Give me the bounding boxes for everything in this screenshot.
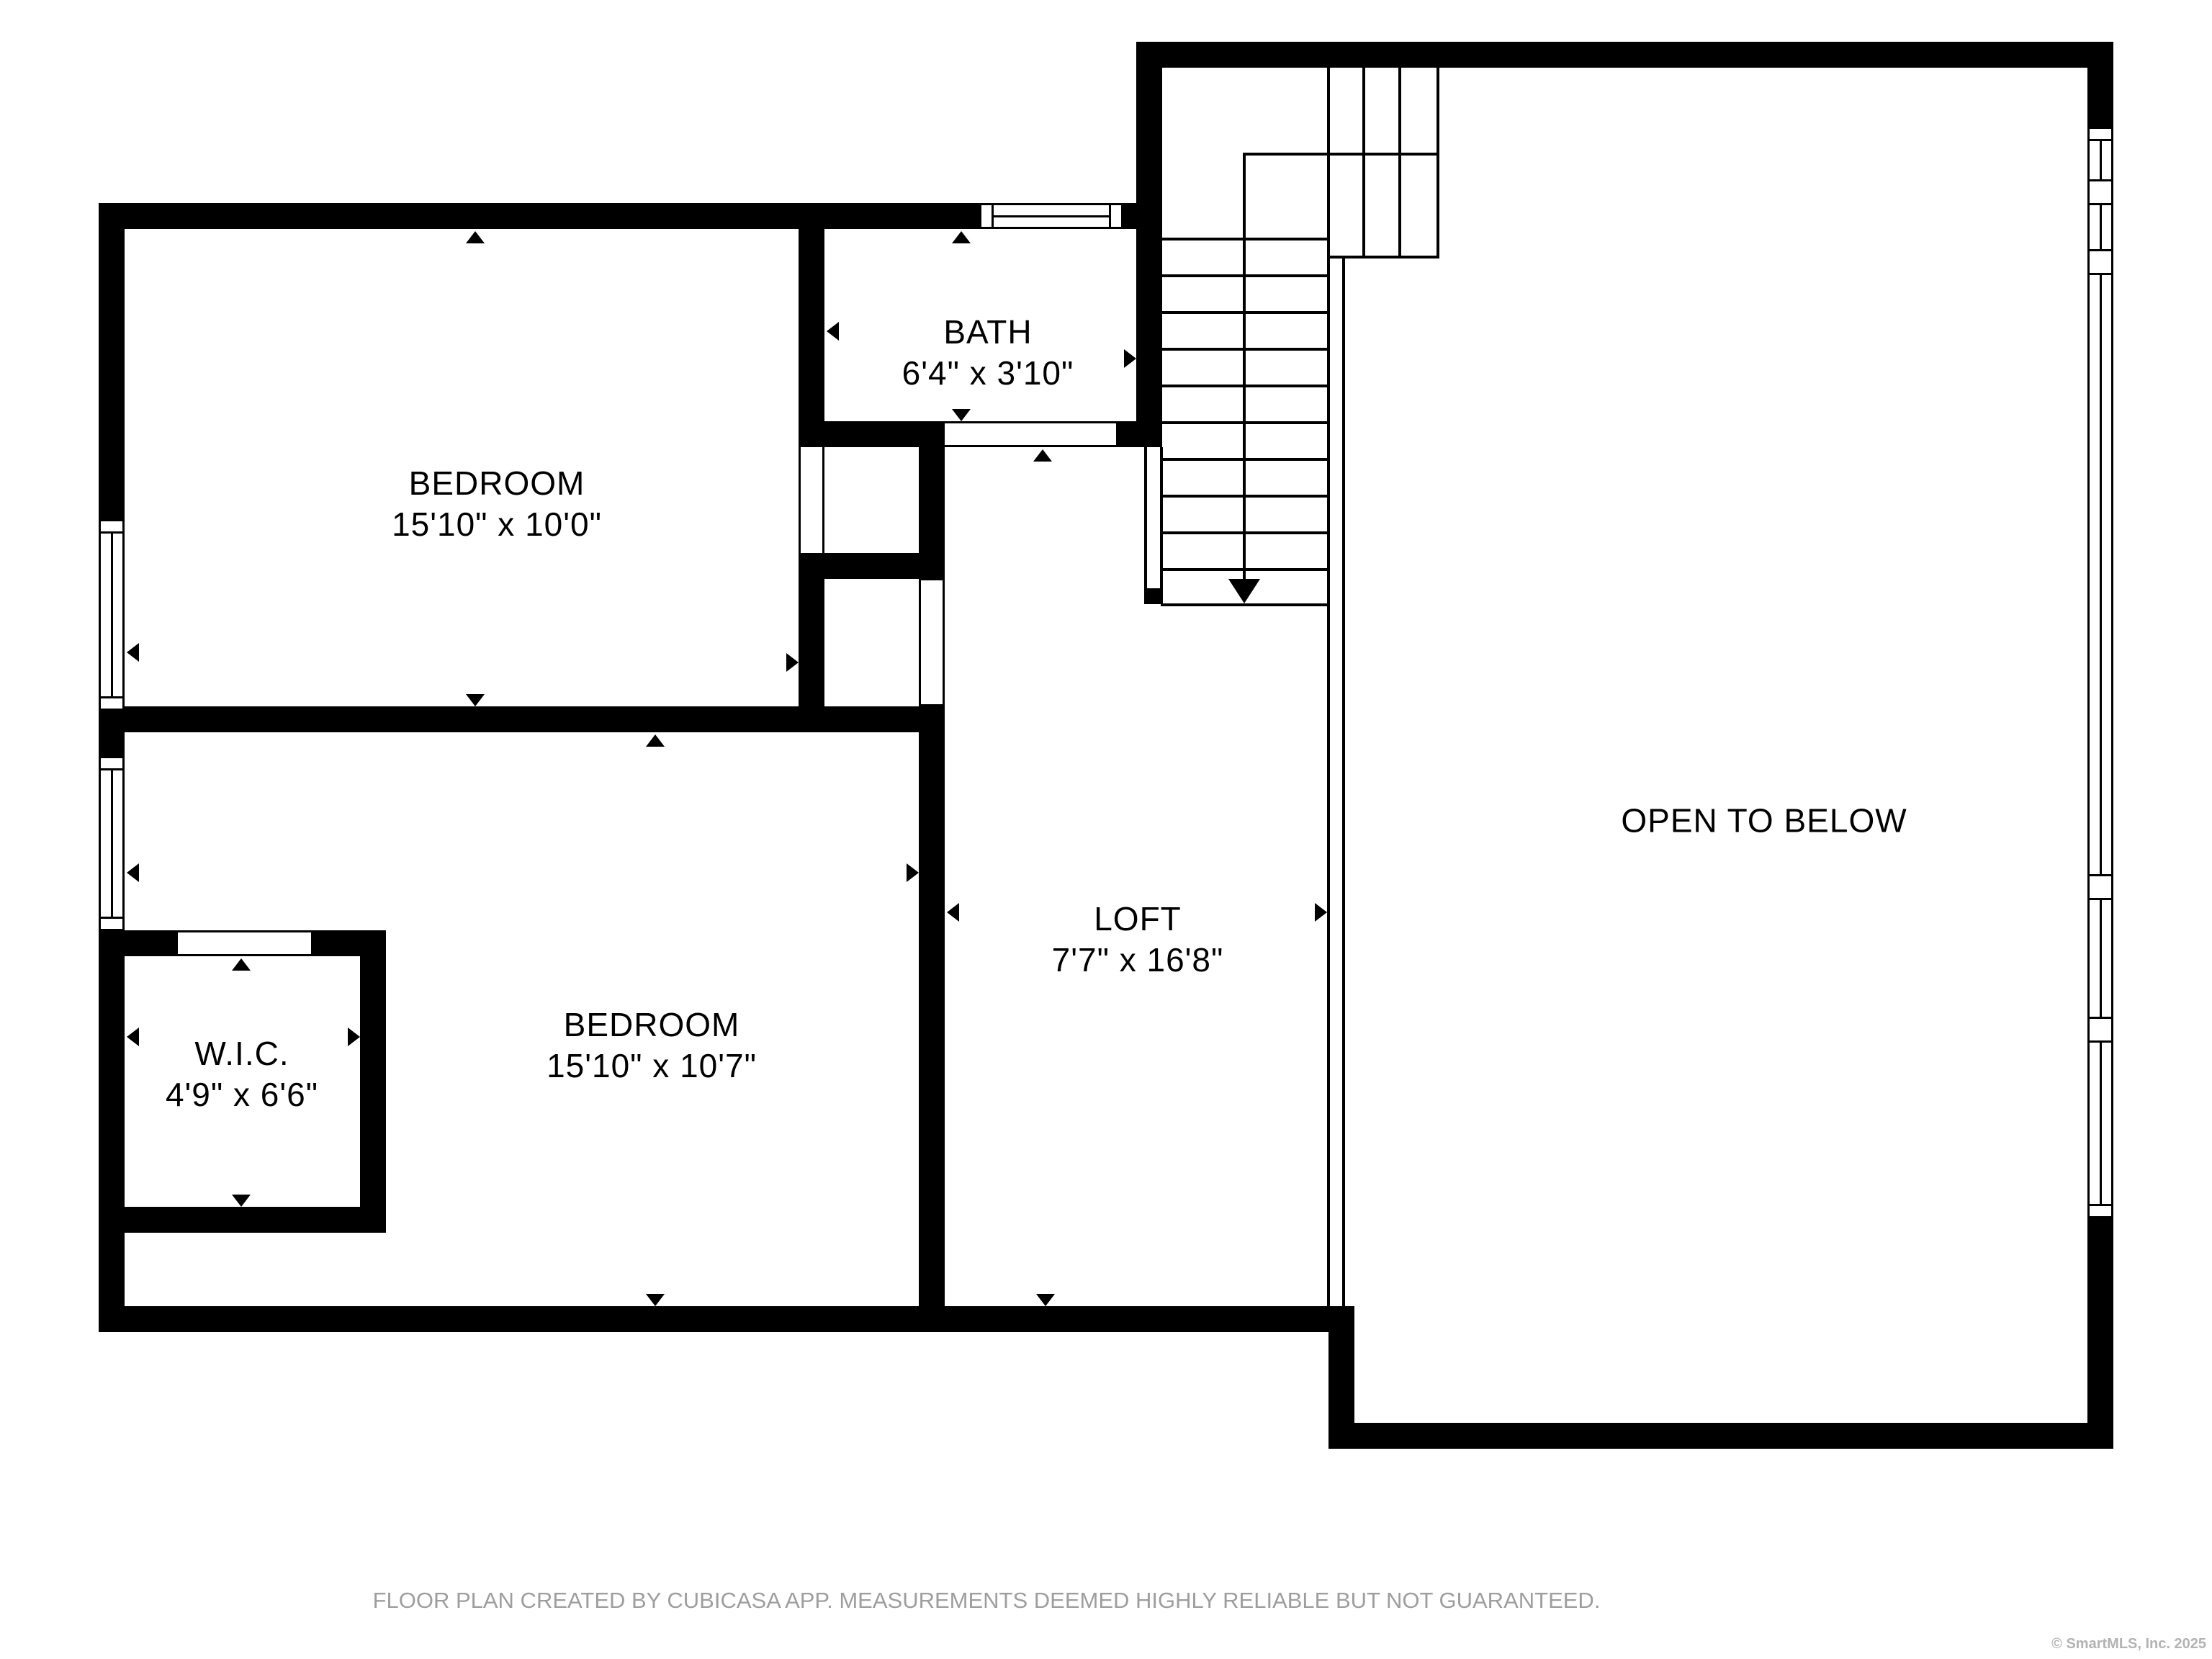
wic-door-jamb-a (178, 930, 311, 932)
room-label-wic: W.I.C.4'9" x 6'6" (166, 1033, 318, 1115)
hall-door-jamb-a (919, 580, 921, 704)
bedroom2-left-arrow-icon (125, 863, 139, 882)
tread-2 (1161, 311, 1328, 314)
bedroom2-bottom-arrow-icon (646, 1294, 665, 1308)
bath-bottom-wall-right (1116, 421, 1162, 447)
window-cap (1109, 205, 1111, 227)
room-dimensions-bedroom-1: 15'10" x 10'0" (392, 504, 602, 545)
room-dimensions-bedroom-2: 15'10" x 10'7" (547, 1046, 757, 1087)
loft-right-arrow-icon (1315, 903, 1329, 922)
bedroom1-left-arrow-icon (125, 643, 139, 662)
stair-center-line (1243, 153, 1246, 585)
window-glass-line (111, 770, 113, 917)
window-glass-line (994, 215, 1109, 217)
bedroom1-door-jamb-a (799, 447, 801, 553)
bedroom1-top-arrow-icon (466, 229, 485, 243)
copyright-notice: © SmartMLS, Inc. 2025 (2051, 1636, 2206, 1653)
window-divider (2090, 249, 2111, 275)
bath-top-arrow-icon (952, 229, 971, 243)
stair-direction-arrow-icon (1228, 579, 1260, 606)
bedroom-divider-wall (99, 706, 945, 732)
room-name-bedroom-2: BEDROOM (547, 1004, 757, 1046)
room-name-open-to-below: OPEN TO BELOW (1621, 801, 1907, 842)
room-label-loft: LOFT7'7" x 16'8" (1052, 899, 1224, 981)
tread-5 (1161, 421, 1328, 424)
stair-right-edge (1437, 68, 1439, 258)
window-cap (101, 917, 122, 919)
bedroom1-right-wall-upper (799, 229, 824, 447)
stair-left-wall (1136, 42, 1162, 447)
room-name-bath: BATH (902, 312, 1074, 353)
room-label-bedroom-1: BEDROOM15'10" x 10'0" (392, 463, 602, 545)
bedroom1-right-arrow-icon (786, 653, 801, 672)
loft-bottom-arrow-icon (1036, 1294, 1055, 1308)
hall-wall-upper (919, 421, 945, 580)
winder-line-2 (1398, 68, 1401, 258)
wic-bottom-arrow-icon (232, 1195, 251, 1209)
window-glass-line (2100, 141, 2102, 1204)
stair-side-railing-b (1160, 447, 1163, 588)
bath-door-arrow-icon (1033, 447, 1052, 462)
stair-winder-edge-railing-left (1327, 68, 1330, 1306)
wic-right-wall (360, 930, 386, 1233)
tread-6 (1161, 458, 1328, 461)
bedroom2-window (99, 756, 125, 931)
bedroom1-bottom-arrow-icon (466, 694, 485, 709)
room-name-wic: W.I.C. (166, 1033, 318, 1074)
bath-door-jamb-b (943, 445, 1116, 447)
window-cap (2090, 1204, 2111, 1206)
room-dimensions-loft: 7'7" x 16'8" (1052, 940, 1224, 981)
bedroom2-right-arrow-icon (907, 863, 921, 882)
bath-right-arrow-icon (1124, 349, 1138, 368)
hall-door-jamb-b (943, 580, 945, 704)
stair-side-railing-a (1144, 447, 1147, 588)
bedroom1-door-jamb-b (822, 447, 824, 553)
window-divider (2090, 874, 2111, 900)
room-dimensions-bath: 6'4" x 3'10" (902, 353, 1074, 394)
wic-door-arrow-icon (232, 956, 251, 971)
open-area-window-bank (2087, 127, 2113, 1218)
loft-railing-right (1342, 256, 1345, 1306)
open-bottom-wall (1328, 1423, 2113, 1449)
loft-left-arrow-icon (945, 903, 959, 922)
wic-left-arrow-icon (125, 1028, 139, 1046)
tread-3 (1161, 348, 1328, 351)
tread-1 (1161, 274, 1328, 277)
window-glass-line (111, 534, 113, 696)
winder-horizontal (1243, 153, 1439, 156)
tread-9 (1161, 568, 1328, 571)
room-name-loft: LOFT (1052, 899, 1224, 940)
loft-connector-wall (1328, 1306, 1354, 1449)
open-top-wall (1136, 42, 2113, 68)
window-cap (101, 696, 122, 698)
railing-top-line (1327, 256, 1439, 258)
window-divider (2090, 179, 2111, 205)
bath-bottom-arrow-icon (952, 409, 971, 423)
room-name-bedroom-1: BEDROOM (392, 463, 602, 504)
room-label-bedroom-2: BEDROOM15'10" x 10'7" (547, 1004, 757, 1087)
room-label-bath: BATH6'4" x 3'10" (902, 312, 1074, 394)
floor-plan: BEDROOM15'10" x 10'0"BATH6'4" x 3'10"BED… (0, 0, 2212, 1659)
tread-4 (1161, 385, 1328, 387)
tread-7 (1161, 495, 1328, 498)
stair-railing-post (1144, 588, 1163, 604)
bath-window (979, 203, 1123, 229)
wic-top-wall-left (99, 930, 178, 956)
wing-bottom-wall (99, 1306, 1354, 1332)
bedroom1-window (99, 519, 125, 711)
wic-right-arrow-icon (348, 1028, 362, 1046)
tread-8 (1161, 531, 1328, 534)
window-divider (2090, 1017, 2111, 1043)
hall-wall-lower (919, 704, 945, 1306)
room-dimensions-wic: 4'9" x 6'6" (166, 1074, 318, 1115)
landing-line (1161, 238, 1328, 240)
winder-line-1 (1362, 68, 1365, 258)
wic-bottom-wall (99, 1207, 386, 1233)
footer-disclaimer: FLOOR PLAN CREATED BY CUBICASA APP. MEAS… (266, 1588, 1707, 1614)
bath-left-arrow-icon (824, 322, 839, 341)
room-label-open-to-below: OPEN TO BELOW (1621, 801, 1907, 842)
bedroom2-top-arrow-icon (646, 732, 665, 747)
